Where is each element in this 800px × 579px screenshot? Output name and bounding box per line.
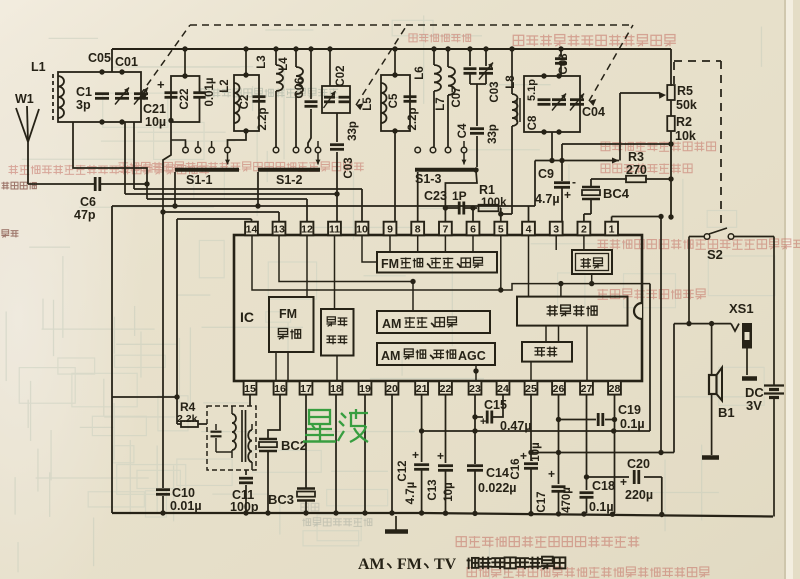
- svg-text:+: +: [620, 475, 627, 489]
- svg-text:0.01µ: 0.01µ: [204, 77, 216, 106]
- svg-text:R2: R2: [676, 115, 692, 129]
- svg-text:2: 2: [581, 224, 587, 236]
- svg-text:C6: C6: [80, 195, 96, 209]
- svg-text:+: +: [564, 188, 571, 202]
- svg-text:6: 6: [470, 224, 476, 236]
- svg-text:18: 18: [330, 383, 342, 395]
- svg-text:L4: L4: [278, 57, 290, 71]
- svg-text:10k: 10k: [675, 129, 696, 143]
- svg-text:2.2p: 2.2p: [407, 107, 419, 130]
- svg-text:5: 5: [498, 224, 504, 236]
- svg-text:C02: C02: [335, 65, 347, 86]
- svg-text:22: 22: [440, 383, 452, 395]
- svg-text:-: -: [572, 175, 576, 189]
- svg-text:3: 3: [553, 224, 559, 236]
- svg-text:C17: C17: [536, 491, 548, 512]
- svg-text:C13: C13: [427, 479, 439, 500]
- svg-text:W1: W1: [15, 92, 34, 106]
- svg-text:2.2p: 2.2p: [257, 107, 269, 130]
- svg-text:8: 8: [415, 224, 421, 236]
- svg-text:0.47µ: 0.47µ: [500, 419, 532, 433]
- svg-text:+: +: [480, 416, 486, 428]
- svg-text:3p: 3p: [76, 98, 91, 112]
- svg-text:28: 28: [609, 383, 621, 395]
- svg-text:47p: 47p: [74, 208, 96, 222]
- svg-text:33p: 33p: [487, 124, 499, 144]
- svg-text:220µ: 220µ: [625, 488, 653, 502]
- svg-text:C03: C03: [489, 81, 501, 102]
- svg-text:C01: C01: [115, 55, 138, 69]
- svg-text:IC: IC: [240, 309, 254, 325]
- svg-text:26: 26: [553, 383, 565, 395]
- svg-text:C15: C15: [484, 398, 507, 412]
- svg-text:BC3: BC3: [268, 492, 294, 507]
- svg-text:AM: AM: [382, 317, 401, 331]
- svg-text:100k: 100k: [481, 197, 507, 209]
- svg-text:C8: C8: [527, 115, 539, 130]
- svg-text:0.022µ: 0.022µ: [478, 481, 516, 495]
- svg-text:12: 12: [301, 224, 313, 236]
- svg-text:AM: AM: [381, 349, 400, 363]
- svg-text:10µ: 10µ: [443, 482, 455, 501]
- svg-text:+: +: [412, 448, 419, 462]
- svg-text:10µ: 10µ: [145, 115, 166, 129]
- svg-text:TV: TV: [434, 556, 457, 573]
- svg-text:C12: C12: [397, 460, 409, 481]
- svg-text:S2: S2: [707, 247, 723, 262]
- svg-text:20: 20: [386, 383, 398, 395]
- svg-text:23: 23: [469, 383, 481, 395]
- svg-text:L3: L3: [256, 55, 268, 68]
- svg-text:S1-1: S1-1: [186, 173, 212, 187]
- svg-text:4: 4: [526, 224, 532, 236]
- svg-text:C9: C9: [538, 167, 554, 181]
- svg-text:C08: C08: [558, 53, 570, 75]
- svg-text:FM: FM: [279, 307, 297, 321]
- svg-text:R1: R1: [479, 183, 495, 197]
- svg-text:C2: C2: [239, 95, 251, 110]
- svg-text:C18: C18: [592, 479, 615, 493]
- svg-text:0.01µ: 0.01µ: [170, 499, 202, 513]
- svg-text:C20: C20: [627, 457, 650, 471]
- svg-text:L8: L8: [505, 75, 517, 89]
- svg-text:C19: C19: [618, 403, 641, 417]
- svg-text:XS1: XS1: [729, 301, 754, 316]
- svg-text:S1-2: S1-2: [276, 173, 302, 187]
- svg-text:C4: C4: [457, 123, 469, 138]
- svg-text:25: 25: [525, 383, 537, 395]
- svg-text:C14: C14: [486, 466, 509, 480]
- svg-text:5.1p: 5.1p: [526, 79, 538, 101]
- svg-text:L6: L6: [414, 66, 426, 79]
- svg-text:C10: C10: [172, 486, 195, 500]
- svg-text:1: 1: [609, 224, 615, 236]
- svg-text:1P: 1P: [452, 189, 467, 203]
- svg-text:14: 14: [246, 224, 258, 236]
- svg-text:19: 19: [359, 383, 371, 395]
- svg-text:7: 7: [442, 224, 448, 236]
- svg-text:27: 27: [581, 383, 593, 395]
- svg-text:L2: L2: [219, 79, 231, 92]
- svg-text:+: +: [437, 449, 444, 463]
- svg-text:AGC: AGC: [458, 349, 486, 363]
- svg-text:15: 15: [244, 383, 256, 395]
- svg-text:C06: C06: [294, 77, 306, 98]
- svg-text:C07: C07: [451, 86, 463, 107]
- svg-text:270: 270: [626, 163, 647, 177]
- svg-text:C22: C22: [179, 88, 191, 109]
- svg-text:0.1µ: 0.1µ: [589, 500, 614, 514]
- svg-text:C5: C5: [388, 93, 400, 108]
- svg-text:21: 21: [416, 383, 428, 395]
- svg-text:C21: C21: [143, 102, 166, 116]
- svg-text:C04: C04: [582, 105, 605, 119]
- svg-text:16: 16: [274, 383, 286, 395]
- svg-text:L7: L7: [435, 97, 447, 110]
- svg-text:B1: B1: [718, 405, 735, 420]
- svg-text:+: +: [157, 77, 165, 92]
- svg-text:11: 11: [329, 224, 340, 236]
- svg-text:L5: L5: [362, 97, 374, 111]
- svg-text:4.7µ: 4.7µ: [535, 192, 560, 206]
- svg-text:C16: C16: [510, 458, 522, 479]
- svg-text:R4: R4: [180, 400, 196, 414]
- svg-text:10µ: 10µ: [530, 442, 542, 461]
- svg-text:FM: FM: [381, 257, 399, 271]
- svg-text:BC4: BC4: [603, 186, 630, 201]
- svg-text:100p: 100p: [230, 500, 259, 514]
- svg-text:C1: C1: [76, 85, 92, 99]
- svg-text:33p: 33p: [347, 121, 359, 141]
- svg-text:470µ: 470µ: [561, 487, 573, 513]
- svg-text:2.2k: 2.2k: [177, 413, 198, 425]
- svg-text:24: 24: [497, 383, 509, 395]
- svg-text:S1-3: S1-3: [415, 172, 441, 186]
- svg-text:3V: 3V: [746, 398, 762, 413]
- svg-text:C23: C23: [424, 189, 447, 203]
- svg-text:C03: C03: [343, 157, 355, 178]
- svg-text:R5: R5: [677, 84, 693, 98]
- svg-text:17: 17: [300, 383, 312, 395]
- svg-text:AM: AM: [358, 556, 385, 573]
- svg-text:R3: R3: [628, 150, 644, 164]
- svg-text:FM: FM: [397, 556, 422, 573]
- svg-text:50k: 50k: [676, 98, 697, 112]
- svg-text:C05: C05: [88, 51, 111, 65]
- svg-text:0.1µ: 0.1µ: [620, 417, 645, 431]
- svg-text:L1: L1: [31, 60, 46, 74]
- svg-text:4.7µ: 4.7µ: [405, 482, 417, 505]
- svg-text:13: 13: [273, 224, 285, 236]
- svg-text:9: 9: [387, 224, 393, 236]
- svg-text:+: +: [548, 467, 555, 481]
- svg-text:10: 10: [356, 224, 368, 236]
